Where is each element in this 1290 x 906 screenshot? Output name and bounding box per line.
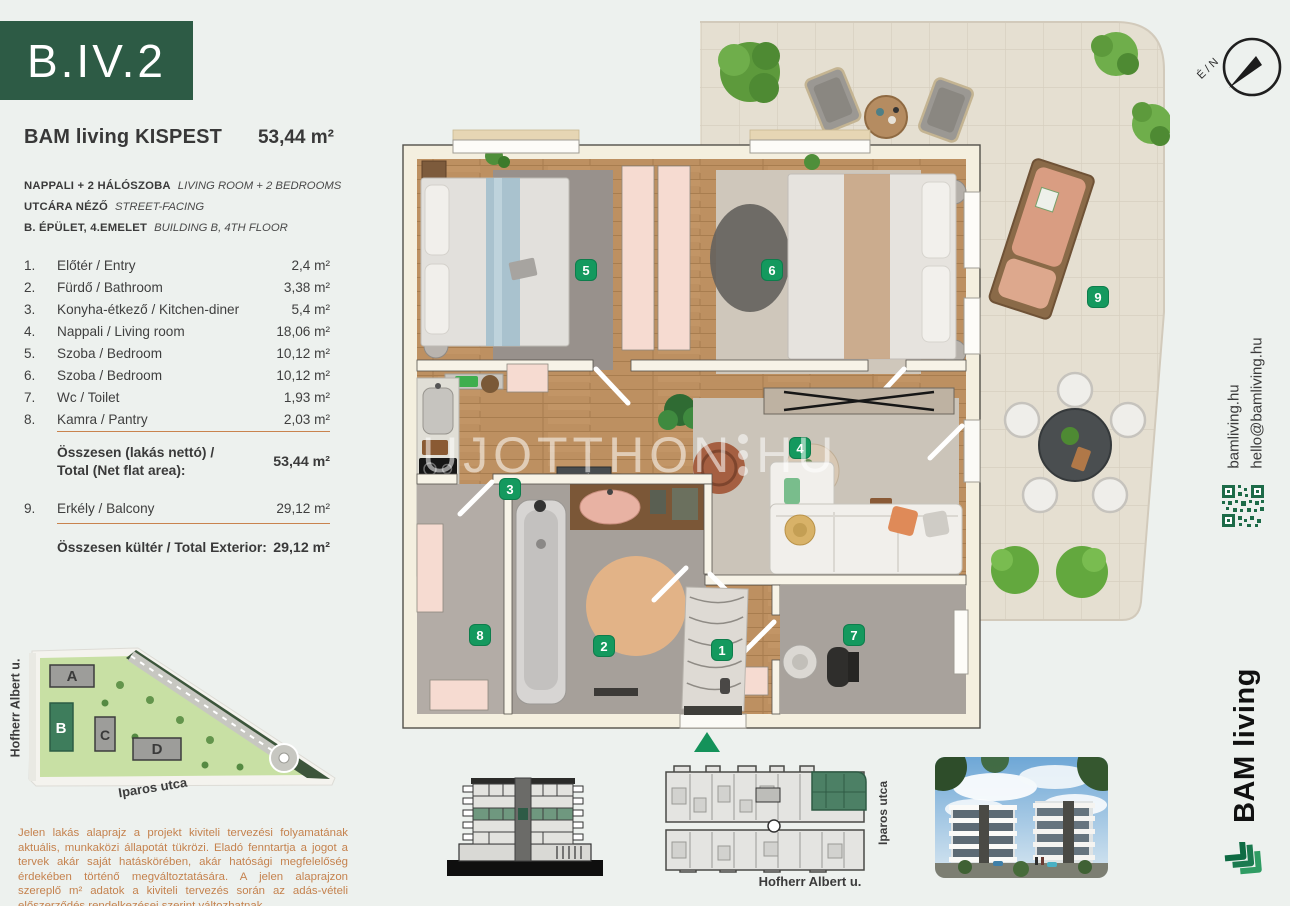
highlighted-unit [812, 772, 866, 810]
total-exterior-row: Összesen kültér / Total Exterior: 29,12 … [57, 540, 330, 556]
row-num: 4. [24, 321, 57, 343]
row-name: Előtér / Entry [57, 255, 250, 277]
divider [57, 523, 330, 524]
building-elevation-diagram [445, 770, 605, 880]
spec-rooms-hu: NAPPALI + 2 HÁLÓSZOBA [24, 176, 171, 197]
keyplan-street-right-label: Iparos utca [872, 768, 894, 858]
spec-floor-en: BUILDING B, 4TH FLOOR [154, 218, 288, 239]
row-area: 2,4 m² [250, 255, 330, 277]
row-num: 1. [24, 255, 57, 277]
svg-text:D: D [152, 741, 163, 758]
spec-rooms-en: LIVING ROOM + 2 BEDROOMS [178, 176, 342, 197]
total-exterior-label: Összesen kültér / Total Exterior: [57, 540, 273, 556]
total-net-label: Összesen (lakás nettó) / Total (Net flat… [57, 444, 273, 480]
row-name: Fürdő / Bathroom [57, 277, 250, 299]
site-building-d: D [133, 738, 181, 760]
unit-code-plate: B.IV.2 [0, 21, 193, 100]
room-badge-6: 6 [761, 259, 783, 281]
building-render-photo [935, 757, 1108, 878]
row-area: 18,06 m² [250, 321, 330, 343]
doormat [684, 706, 742, 715]
disclaimer-text: Jelen lakás alaprajz a projekt kiviteli … [18, 826, 348, 906]
row-name: Szoba / Bedroom [57, 365, 250, 387]
room-badge-8: 8 [469, 624, 491, 646]
row-name: Kamra / Pantry [57, 409, 250, 431]
site-map: A B C D [10, 645, 340, 795]
watermark-right: HU [756, 425, 838, 485]
bedroom-6 [710, 154, 966, 374]
sink [580, 490, 640, 524]
window [453, 140, 579, 153]
row-area: 29,12 m² [250, 498, 330, 520]
spec-orientation-en: STREET-FACING [115, 197, 204, 218]
row-name: Konyha-étkező / Kitchen-diner [57, 299, 250, 321]
row-area: 10,12 m² [250, 365, 330, 387]
total-exterior-value: 29,12 m² [273, 540, 330, 556]
site-building-b-highlight: B [50, 703, 73, 751]
table-row: 5.Szoba / Bedroom10,12 m² [24, 343, 330, 365]
window [954, 610, 968, 674]
row-name: Wc / Toilet [57, 387, 250, 409]
entry-door-opening [680, 714, 746, 728]
hall-closet [507, 364, 548, 392]
spec-floor: B. ÉPÜLET, 4.EMELET BUILDING B, 4TH FLOO… [24, 218, 364, 239]
table-row: 2.Fürdő / Bathroom3,38 m² [24, 277, 330, 299]
watermark-left: UJOTTHON [422, 425, 734, 485]
divider [57, 431, 330, 432]
bathroom [512, 484, 706, 714]
row-num: 5. [24, 343, 57, 365]
pantry [417, 484, 504, 714]
room-badge-1: 1 [711, 639, 733, 661]
compass-icon [1212, 30, 1288, 106]
floor-key-plan [660, 762, 885, 874]
project-title: BAM living KISPEST [24, 126, 222, 149]
unit-code: B.IV.2 [27, 34, 166, 88]
floorplan-drawing [398, 12, 1170, 752]
balcony-door [964, 420, 980, 482]
total-net-row: Összesen (lakás nettó) / Total (Net flat… [57, 444, 330, 480]
website-link[interactable]: bamliving.hu [1223, 337, 1246, 468]
row-area: 10,12 m² [250, 343, 330, 365]
toilet [827, 647, 850, 687]
brand-logo-chevrons-icon [1224, 842, 1270, 888]
room-badge-5: 5 [575, 259, 597, 281]
room-table: 1.Előtér / Entry2,4 m² 2.Fürdő / Bathroo… [24, 255, 330, 556]
spec-rooms: NAPPALI + 2 HÁLÓSZOBA LIVING ROOM + 2 BE… [24, 176, 364, 197]
row-num: 6. [24, 365, 57, 387]
row-name: Szoba / Bedroom [57, 343, 250, 365]
window [750, 140, 870, 153]
terrace-side-table [865, 96, 907, 138]
table-row: 8.Kamra / Pantry2,03 m² [24, 409, 330, 431]
total-net-value: 53,44 m² [273, 454, 330, 470]
site-building-a: A [50, 665, 94, 687]
email-link[interactable]: hello@bamliving.hu [1246, 337, 1269, 468]
row-area: 5,4 m² [250, 299, 330, 321]
balcony-row: 9. Erkély / Balcony 29,12 m² [24, 498, 330, 520]
total-net-label-en: Total (Net flat area): [57, 463, 186, 478]
spec-orientation: UTCÁRA NÉZŐ STREET-FACING [24, 197, 364, 218]
room-badge-2: 2 [593, 635, 615, 657]
row-area: 2,03 m² [250, 409, 330, 431]
svg-text:A: A [67, 668, 78, 685]
row-name: Erkély / Balcony [57, 498, 250, 520]
row-area: 3,38 m² [250, 277, 330, 299]
table-row: 4.Nappali / Living room18,06 m² [24, 321, 330, 343]
table-row: 1.Előtér / Entry2,4 m² [24, 255, 330, 277]
row-area: 1,93 m² [250, 387, 330, 409]
watermark-dots-icon [738, 434, 748, 476]
window [964, 192, 980, 268]
spec-orientation-hu: UTCÁRA NÉZŐ [24, 197, 108, 218]
row-num: 9. [24, 498, 57, 520]
brand-wordmark: BAM living [1205, 645, 1285, 845]
svg-text:C: C [100, 727, 110, 743]
room-badge-7: 7 [843, 624, 865, 646]
floorplan: 1 2 3 4 5 6 7 8 9 UJOTTHON HU [398, 12, 1170, 752]
row-num: 8. [24, 409, 57, 431]
row-num: 2. [24, 277, 57, 299]
spec-lines: NAPPALI + 2 HÁLÓSZOBA LIVING ROOM + 2 BE… [24, 176, 364, 239]
row-num: 7. [24, 387, 57, 409]
table-row: 6.Szoba / Bedroom10,12 m² [24, 365, 330, 387]
flat-datasheet-page: B.IV.2 BAM living KISPEST 53,44 m² NAPPA… [0, 0, 1290, 906]
svg-text:B: B [56, 720, 67, 737]
row-num: 3. [24, 299, 57, 321]
watermark: UJOTTHON HU [422, 420, 874, 490]
wc [780, 585, 968, 714]
shoes [720, 678, 730, 694]
header: BAM living KISPEST 53,44 m² [24, 126, 334, 149]
window [964, 298, 980, 354]
room-badge-9: 9 [1087, 286, 1109, 308]
total-net-label-hu: Összesen (lakás nettó) / [57, 445, 214, 460]
site-building-c: C [95, 717, 115, 751]
table-row: 7.Wc / Toilet1,93 m² [24, 387, 330, 409]
qr-code[interactable] [1222, 479, 1264, 527]
contact-block: bamliving.hu hello@bamliving.hu [1200, 318, 1290, 488]
sitemap-street-left-label: Hofherr Albert u. [6, 650, 24, 765]
total-area: 53,44 m² [258, 127, 334, 149]
table-row: 3.Konyha-étkező / Kitchen-diner5,4 m² [24, 299, 330, 321]
spec-floor-hu: B. ÉPÜLET, 4.EMELET [24, 218, 147, 239]
keyplan-street-bottom-label: Hofherr Albert u. [700, 874, 920, 889]
entrance-arrow-icon [694, 732, 720, 752]
row-name: Nappali / Living room [57, 321, 250, 343]
